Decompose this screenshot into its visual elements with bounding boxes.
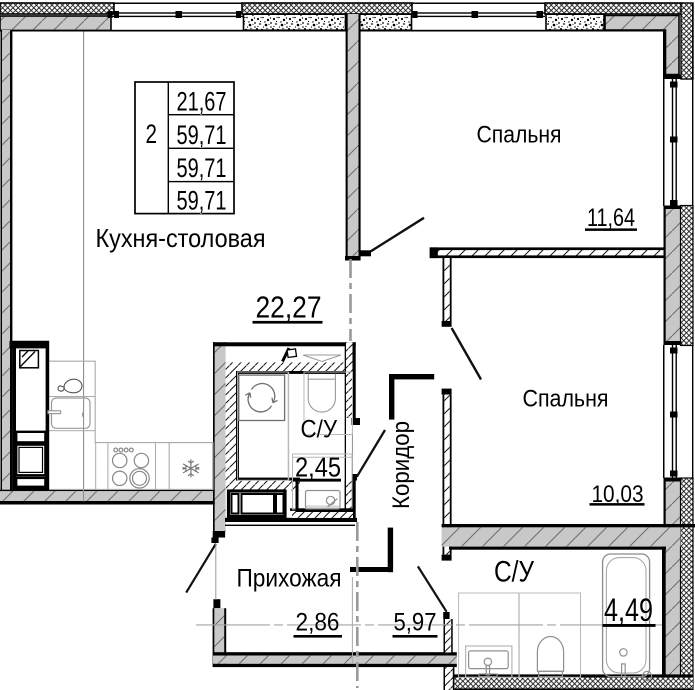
svg-text:Кухня-столовая: Кухня-столовая	[96, 223, 266, 253]
svg-text:2,86: 2,86	[296, 609, 340, 637]
svg-text:2,45: 2,45	[295, 451, 341, 482]
svg-text:Спальня: Спальня	[477, 122, 562, 149]
svg-text:5,97: 5,97	[394, 609, 437, 637]
svg-text:11,64: 11,64	[587, 204, 635, 232]
svg-text:2: 2	[146, 119, 158, 149]
svg-text:59,71: 59,71	[177, 186, 227, 216]
svg-text:Спальня: Спальня	[523, 386, 609, 413]
svg-text:Прихожая: Прихожая	[237, 565, 342, 593]
svg-text:Коридор: Коридор	[388, 421, 415, 509]
svg-text:22,27: 22,27	[256, 290, 322, 325]
svg-text:4,49: 4,49	[604, 592, 653, 628]
svg-text:21,67: 21,67	[177, 86, 227, 116]
svg-text:59,71: 59,71	[177, 120, 227, 150]
svg-text:С/У: С/У	[301, 416, 338, 444]
svg-text:С/У: С/У	[494, 556, 535, 589]
svg-text:59,71: 59,71	[177, 153, 227, 183]
